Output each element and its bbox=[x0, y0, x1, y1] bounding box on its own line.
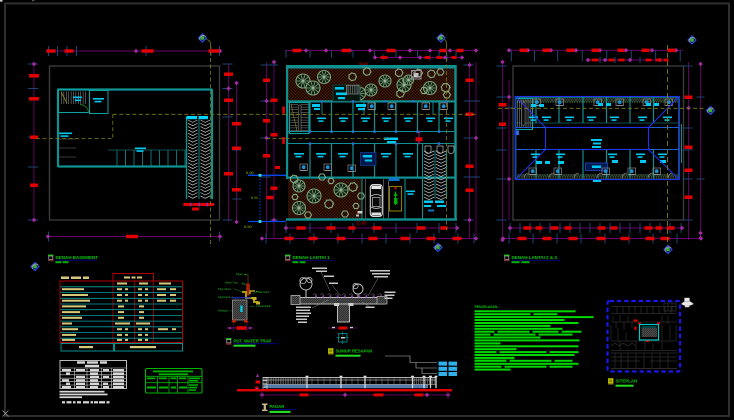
svg-text:Water Trap: Water Trap bbox=[225, 281, 238, 285]
svg-text:PAGAR: PAGAR bbox=[270, 404, 285, 409]
svg-text:Septictank: Septictank bbox=[218, 295, 231, 299]
svg-text:DENAH LANTAI 2 & 3: DENAH LANTAI 2 & 3 bbox=[512, 255, 558, 260]
svg-text:SUMUR RESAPAN: SUMUR RESAPAN bbox=[336, 349, 373, 354]
svg-text:6.50: 6.50 bbox=[244, 224, 253, 229]
svg-text:DENAH BASEMENT: DENAH BASEMENT bbox=[56, 255, 99, 260]
svg-text:Resapan: Resapan bbox=[218, 309, 229, 313]
svg-text:6 M: 6 M bbox=[251, 195, 258, 200]
svg-text:Closet/dipjak: Closet/dipjak bbox=[256, 304, 272, 308]
svg-text:Pipa Udara: Pipa Udara bbox=[218, 287, 232, 291]
svg-text:POT. WATER TRAP: POT. WATER TRAP bbox=[234, 339, 272, 344]
svg-text:DENAH LANTAI 1: DENAH LANTAI 1 bbox=[293, 255, 331, 260]
svg-text:6.50: 6.50 bbox=[246, 170, 255, 175]
svg-text:Pagar: Pagar bbox=[236, 272, 243, 276]
svg-text:23.00: 23.00 bbox=[356, 221, 367, 226]
svg-text:PENJELASAN :: PENJELASAN : bbox=[475, 305, 500, 309]
svg-text:Bak Kotor: Bak Kotor bbox=[258, 290, 270, 294]
svg-text:SITEPLAN: SITEPLAN bbox=[616, 379, 638, 384]
